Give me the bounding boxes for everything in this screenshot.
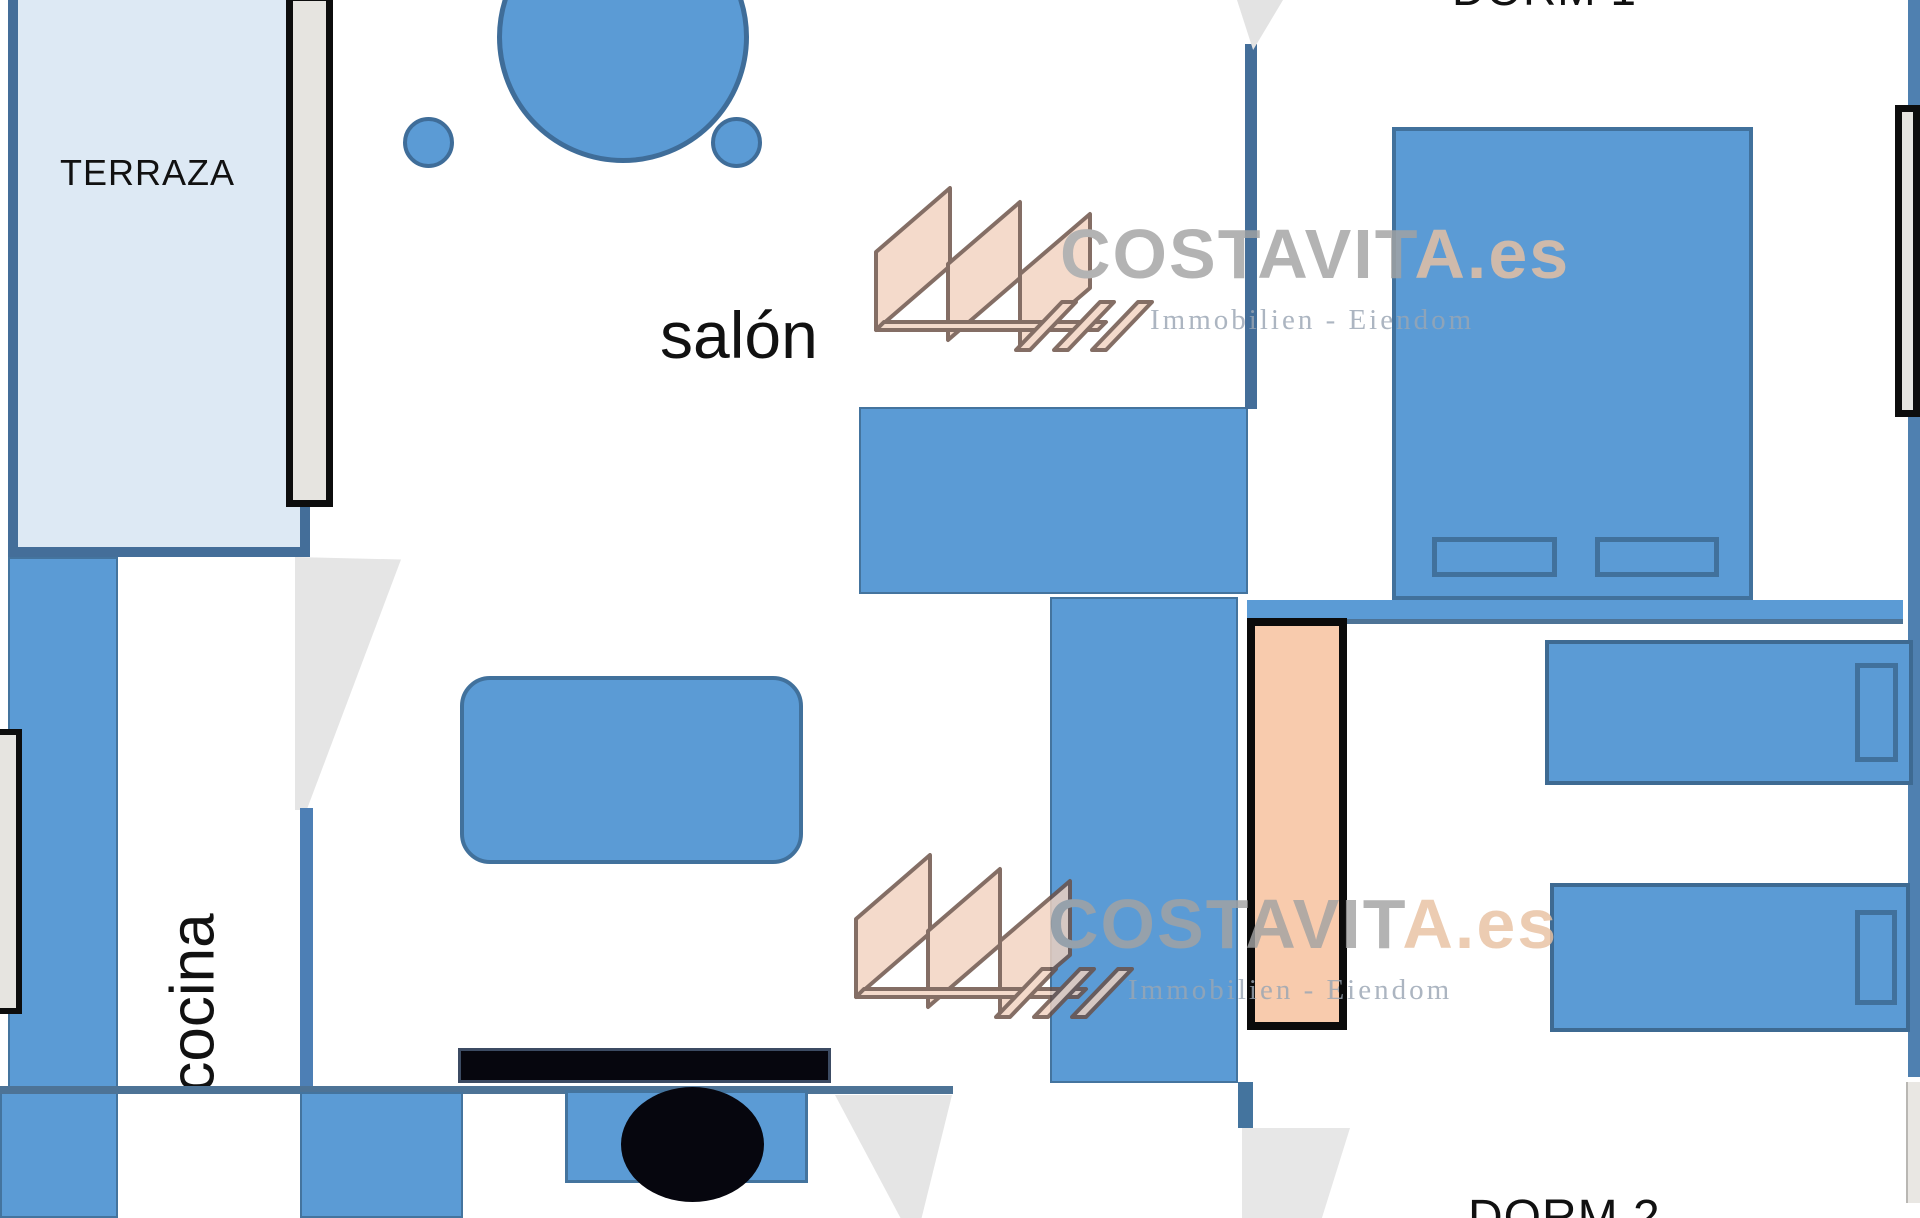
terraza-label: TERRAZA bbox=[60, 152, 235, 194]
pillow-icon bbox=[1855, 910, 1897, 1005]
dorm1-label-cut: DORM 1 bbox=[1452, 0, 1637, 16]
wall-line-top bbox=[1245, 44, 1257, 409]
wall-horizontal-bottom bbox=[0, 1086, 953, 1094]
brand-main: COSTAVIT bbox=[1060, 215, 1414, 293]
salon-door-swing-icon bbox=[835, 1095, 952, 1218]
wall-block-vertical bbox=[1050, 597, 1238, 1083]
salon-label: salón bbox=[660, 297, 818, 373]
terrace-area bbox=[8, 0, 310, 557]
brand-accent: A.es bbox=[1402, 885, 1558, 963]
chair-right-icon bbox=[711, 117, 762, 168]
costavita-logo-icon bbox=[868, 180, 1160, 355]
dorm2-window-icon bbox=[1906, 1082, 1920, 1203]
pillow-icon bbox=[1595, 537, 1719, 577]
kitchen-counter-upper bbox=[8, 557, 118, 1093]
wall-block-bottom-center bbox=[300, 1092, 463, 1218]
floor-plan: TERRAZA cocina salón DORM 1 DORM 2 bbox=[0, 0, 1920, 1218]
wall-block-horizontal bbox=[859, 407, 1248, 594]
chair-left-icon bbox=[403, 117, 454, 168]
pillow-icon bbox=[1855, 663, 1898, 762]
kitchen-counter-lower bbox=[0, 1092, 118, 1218]
bed-single-bottom-icon bbox=[1550, 883, 1910, 1032]
bed-single-top-icon bbox=[1545, 640, 1913, 785]
kitchen-window-icon bbox=[0, 729, 22, 1014]
kitchen-door-swing-icon bbox=[295, 557, 401, 810]
hall-door-peach-icon bbox=[1247, 618, 1347, 1030]
basin-black-ellipse-icon bbox=[621, 1087, 764, 1202]
counter-black-bar bbox=[458, 1048, 831, 1083]
dorm2-label: DORM 2 bbox=[1468, 1190, 1661, 1218]
sofa-icon bbox=[460, 676, 803, 864]
wall-stub-center bbox=[1238, 1082, 1253, 1128]
terrace-window-icon bbox=[286, 0, 333, 507]
dorm1-window-icon bbox=[1895, 105, 1920, 417]
pillow-icon bbox=[1432, 537, 1557, 577]
wall-right-top bbox=[1908, 0, 1920, 108]
dorm1-door-swing-icon bbox=[1237, 0, 1283, 50]
dorm2-door-swing-icon bbox=[1242, 1128, 1350, 1218]
cocina-label: cocina bbox=[158, 913, 229, 1092]
kitchen-wall-lower bbox=[300, 808, 313, 1092]
bed-double-icon bbox=[1392, 127, 1753, 600]
